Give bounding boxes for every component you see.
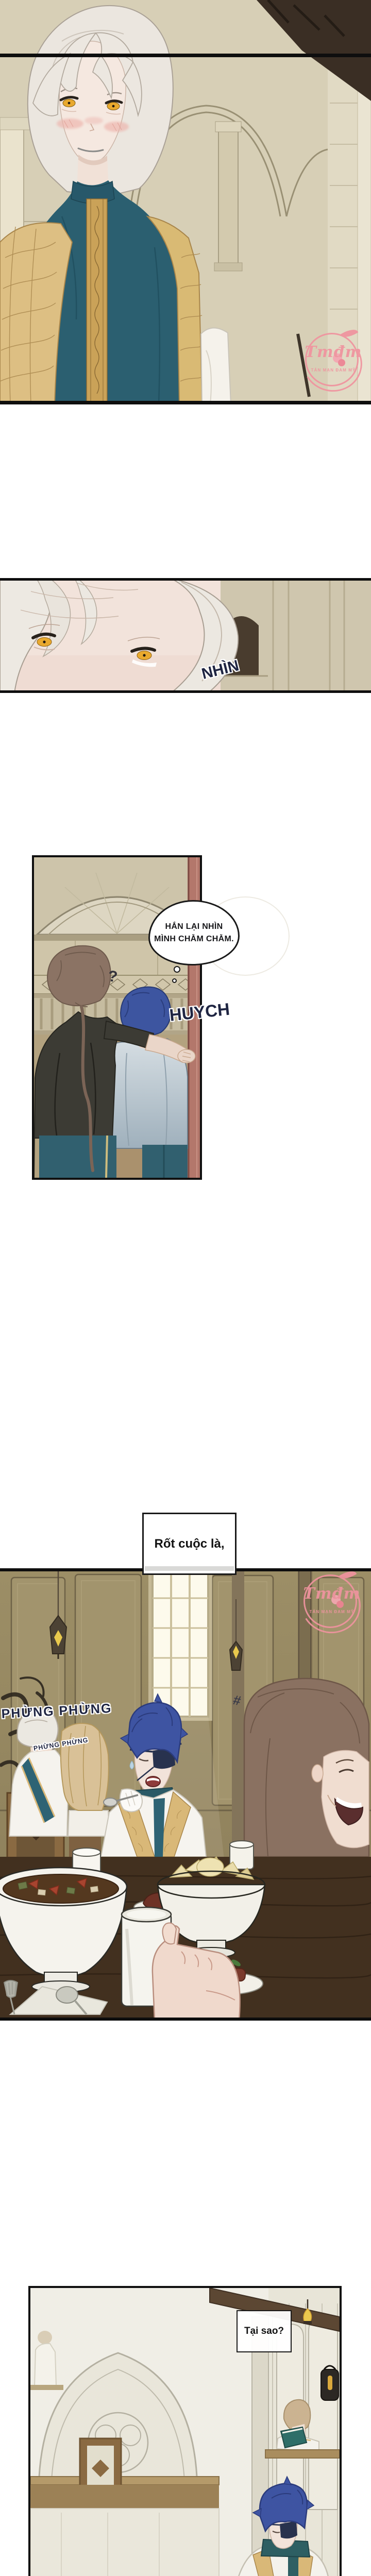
thought-bubble-tail-dot: [174, 966, 180, 973]
watermark-title: Tmđm: [303, 343, 364, 361]
watermark-subtitle: TẢN MẠN ĐAM MỸ: [303, 368, 364, 372]
thought-bubble-tail-dot: [172, 978, 177, 983]
watermark-subtitle: TẢN MẠN ĐAM MỸ: [301, 1609, 362, 1614]
watermark-swirl-icon: [296, 329, 368, 398]
window: [153, 1568, 208, 1717]
panel-5-study-hall: [28, 2286, 342, 2576]
thought-line-1: HẮN LẠI NHÌN: [165, 921, 223, 933]
narration-text-2: Tại sao?: [244, 2326, 284, 2337]
black-lantern: [321, 2366, 339, 2400]
panel-4-dining-hall: [0, 1568, 371, 2021]
watermark-logo-1: Tmđm TẢN MẠN ĐAM MỸ: [303, 331, 364, 392]
narration-box-strip: [145, 1566, 234, 1571]
panel-5-artwork: [30, 2288, 340, 2576]
watermark-swirl-icon: [295, 1570, 366, 1640]
narration-box-2: Tại sao?: [237, 2310, 292, 2352]
watermark-title: Tmđm: [301, 1585, 362, 1603]
foreground-laughing-student: [244, 1679, 369, 1857]
panel-4-artwork: [0, 1568, 371, 2021]
watermark-logo-2: Tmđm TẢN MẠN ĐAM MỸ: [301, 1572, 362, 1633]
panel-2-artwork: [0, 578, 371, 693]
panel-2-eyes-closeup: [0, 578, 371, 693]
thought-line-2: MÌNH CHẰM CHẰM.: [154, 933, 234, 945]
comic-page: Tmđm TẢN MẠN ĐAM MỸ: [0, 0, 371, 2576]
narration-text-1: Rốt cuộc là,: [154, 1537, 224, 1551]
narration-box-1: Rốt cuộc là,: [142, 1513, 237, 1575]
